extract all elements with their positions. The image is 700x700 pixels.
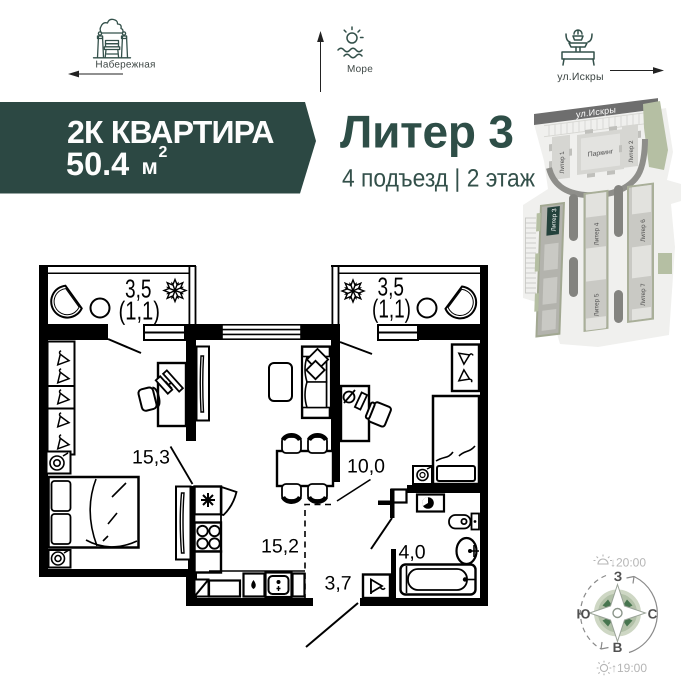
svg-text:м: м: [142, 154, 158, 179]
svg-text:15,3: 15,3: [132, 447, 170, 469]
svg-text:С: С: [648, 607, 658, 622]
svg-text:Литер 5: Литер 5: [594, 293, 601, 317]
svg-text:↓20:00: ↓20:00: [610, 556, 646, 570]
svg-text:15,2: 15,2: [261, 536, 299, 558]
svg-text:Ю: Ю: [577, 607, 591, 622]
svg-text:(1,1): (1,1): [372, 294, 411, 324]
svg-text:2К КВАРТИРА: 2К КВАРТИРА: [67, 114, 274, 150]
svg-text:Набережная: Набережная: [95, 60, 155, 71]
svg-text:В: В: [613, 640, 623, 655]
svg-text:Литер 3: Литер 3: [551, 208, 559, 232]
svg-text:4,0: 4,0: [399, 542, 426, 564]
svg-text:2: 2: [159, 144, 168, 161]
svg-text:(1,1): (1,1): [119, 296, 161, 326]
svg-text:Литер 6: Литер 6: [640, 218, 647, 242]
svg-text:Литер 2: Литер 2: [628, 139, 635, 163]
svg-text:Литер 3: Литер 3: [340, 106, 514, 158]
svg-text:10,0: 10,0: [347, 456, 385, 478]
svg-text:↑19:00: ↑19:00: [611, 661, 647, 675]
svg-text:З: З: [614, 569, 622, 584]
svg-text:Литер 4: Литер 4: [594, 222, 601, 246]
svg-text:Море: Море: [347, 64, 373, 75]
svg-text:3,7: 3,7: [325, 573, 352, 595]
svg-text:Литер 1: Литер 1: [559, 150, 566, 174]
svg-text:Литер 7: Литер 7: [640, 282, 647, 306]
svg-text:50.4: 50.4: [66, 146, 129, 182]
svg-text:ул.Искры: ул.Искры: [557, 71, 603, 83]
svg-text:4 подъезд | 2 этаж: 4 подъезд | 2 этаж: [342, 165, 535, 193]
